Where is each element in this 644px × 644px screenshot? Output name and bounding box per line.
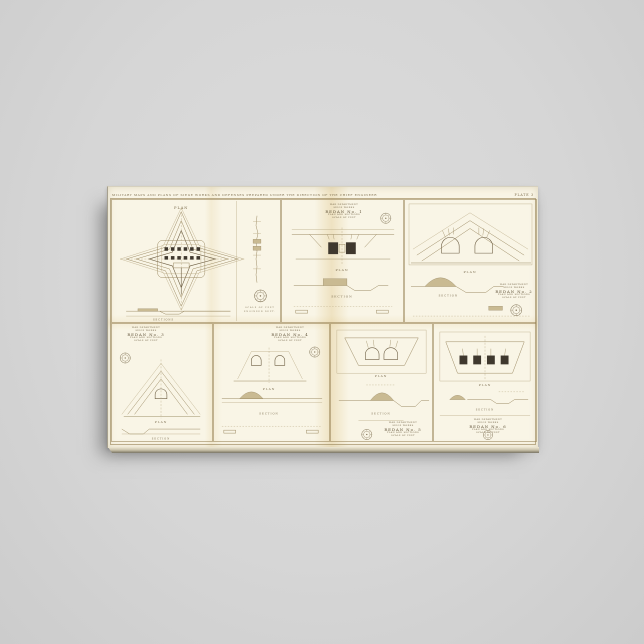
panel-title-block: WAR DEPARTMENT SIEGE WORKS REDAN No. 1 P… xyxy=(316,204,372,220)
plate-number: PLATE 3 xyxy=(515,193,534,197)
elevation-drawing xyxy=(253,216,261,283)
svg-text:PLAN: PLAN xyxy=(479,383,492,387)
canvas-print[interactable]: MILITARY MAPS AND PLANS OF SIEGE WORKS A… xyxy=(107,186,538,448)
seal-stamp-icon xyxy=(310,347,320,357)
sheet-caption-strip: MILITARY MAPS AND PLANS OF SIEGE WORKS A… xyxy=(112,191,534,198)
svg-text:PLAN: PLAN xyxy=(263,387,276,391)
seal-stamp-icon xyxy=(381,213,391,223)
panel-redan-2: PLAN SECTION WAR DEPARTMENT SIEGE WORKS … xyxy=(404,199,537,323)
panel-title-block: WAR DEPARTMENT SIEGE WORKS REDAN No. 4 P… xyxy=(264,327,316,343)
seal-stamp-icon xyxy=(511,305,522,316)
redan-2-drawing: PLAN SECTION xyxy=(405,200,536,322)
section-drawing: SECTIONS xyxy=(126,309,230,322)
svg-text:SECTION: SECTION xyxy=(259,412,278,415)
panel-redan-3: PLAN SECTION WAR DEPARTMENT SIEGE WORKS … xyxy=(111,323,213,442)
panel-redan-1: PLAN SECTION WAR DEPARTMENT SIEGE WORKS … xyxy=(281,199,404,323)
panel-redan-5: PLAN SECTION WAR DEPARTMENT SIEGE WORKS … xyxy=(330,323,433,442)
seal-stamp-icon xyxy=(362,429,372,439)
star-fort-plan-drawing: PLAN xyxy=(112,200,280,322)
sheet-caption: MILITARY MAPS AND PLANS OF SIEGE WORKS A… xyxy=(112,193,377,197)
panel-grid: PLAN xyxy=(110,198,536,445)
svg-text:SECTION: SECTION xyxy=(152,437,170,440)
panel-title-block: WAR DEPARTMENT SIEGE WORKS REDAN No. 6 P… xyxy=(460,419,516,435)
svg-text:SECTION: SECTION xyxy=(439,294,458,297)
canvas-bottom-edge xyxy=(108,447,539,453)
atlas-sheet: MILITARY MAPS AND PLANS OF SIEGE WORKS A… xyxy=(108,187,538,448)
seal-stamp-icon xyxy=(255,290,267,302)
seal-stamp-icon xyxy=(120,353,130,363)
panel-redan-6: PLAN SECTION WAR DEPARTMENT SIEGE WORKS … xyxy=(433,323,537,442)
gun-platform-squares xyxy=(460,356,509,365)
svg-text:PLAN: PLAN xyxy=(463,270,476,274)
backdrop: MILITARY MAPS AND PLANS OF SIEGE WORKS A… xyxy=(0,0,644,644)
panel-title-block: WAR DEPARTMENT SIEGE WORKS REDAN No. 3 P… xyxy=(118,327,174,343)
svg-text:PLAN: PLAN xyxy=(335,268,348,272)
svg-text:SCALE OF FEET: SCALE OF FEET xyxy=(245,307,274,309)
panel-redan-4: PLAN SECTION WAR DEPARTMENT SIEGE WORKS xyxy=(213,323,330,442)
panel-star-fort: PLAN xyxy=(111,199,281,323)
panel-title-block: WAR DEPARTMENT SIEGE WORKS REDAN No. 2 P… xyxy=(493,284,535,300)
svg-text:SECTIONS: SECTIONS xyxy=(153,319,174,322)
svg-text:SECTION: SECTION xyxy=(331,294,352,298)
svg-text:SECTION: SECTION xyxy=(476,408,494,411)
svg-text:PLAN: PLAN xyxy=(375,374,388,378)
svg-text:SECTION: SECTION xyxy=(371,412,390,415)
svg-text:ENGINEER DEPT.: ENGINEER DEPT. xyxy=(244,311,276,313)
svg-text:PLAN: PLAN xyxy=(155,420,168,424)
panel-title-block: WAR DEPARTMENT SIEGE WORKS REDAN No. 5 P… xyxy=(375,422,431,438)
